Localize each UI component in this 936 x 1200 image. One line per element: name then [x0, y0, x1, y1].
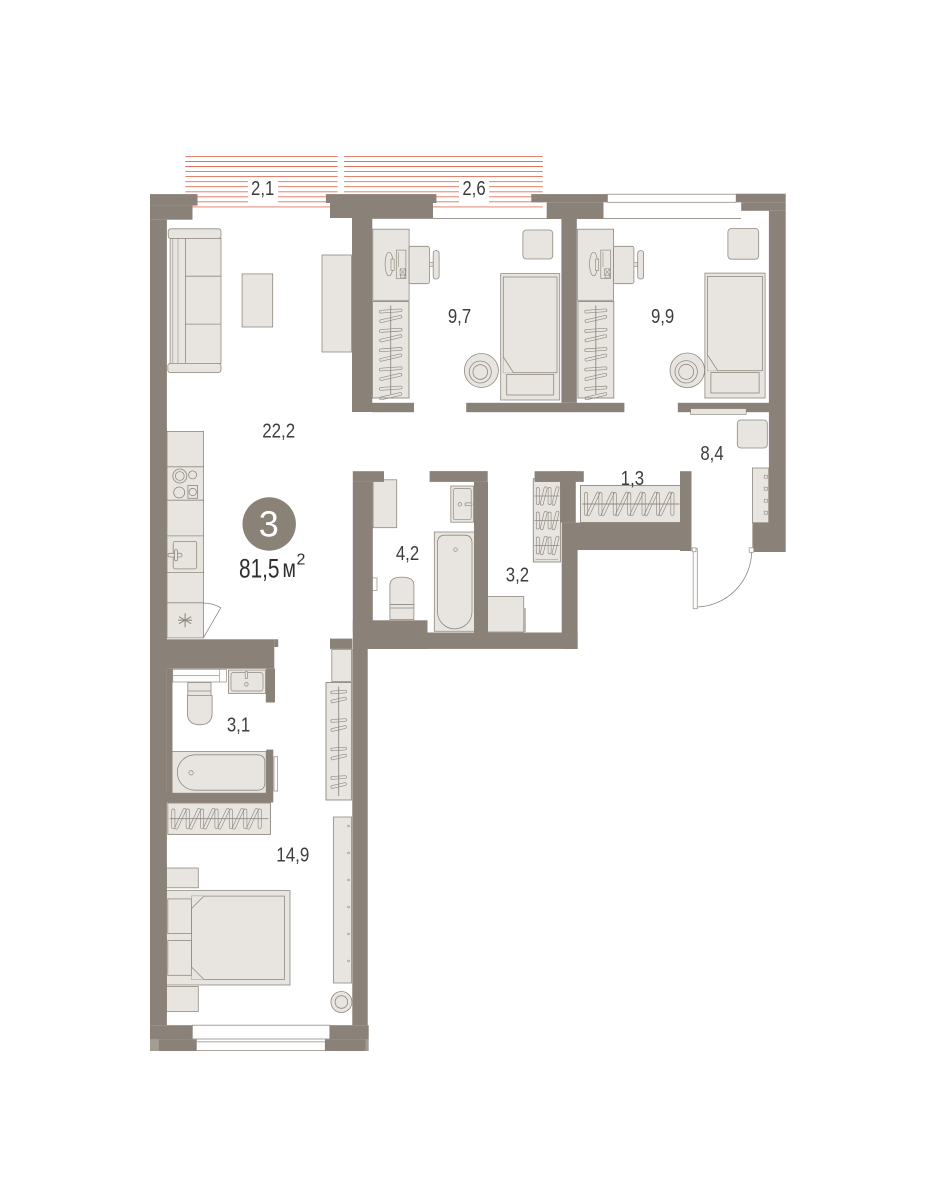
svg-text:9,7: 9,7 — [448, 306, 471, 328]
svg-text:8,4: 8,4 — [700, 443, 723, 465]
svg-text:3,2: 3,2 — [506, 565, 529, 587]
svg-text:3: 3 — [259, 504, 279, 545]
svg-text:81,5: 81,5 — [239, 554, 280, 584]
svg-text:2: 2 — [297, 552, 306, 569]
svg-text:2,6: 2,6 — [462, 178, 485, 200]
svg-text:2,1: 2,1 — [251, 178, 274, 200]
svg-text:14,9: 14,9 — [276, 845, 309, 867]
svg-text:22,2: 22,2 — [262, 420, 295, 442]
svg-text:4,2: 4,2 — [396, 543, 419, 565]
svg-text:9,9: 9,9 — [651, 306, 674, 328]
svg-text:1,3: 1,3 — [621, 468, 644, 490]
svg-text:м: м — [283, 553, 296, 583]
svg-text:3,1: 3,1 — [227, 714, 250, 736]
